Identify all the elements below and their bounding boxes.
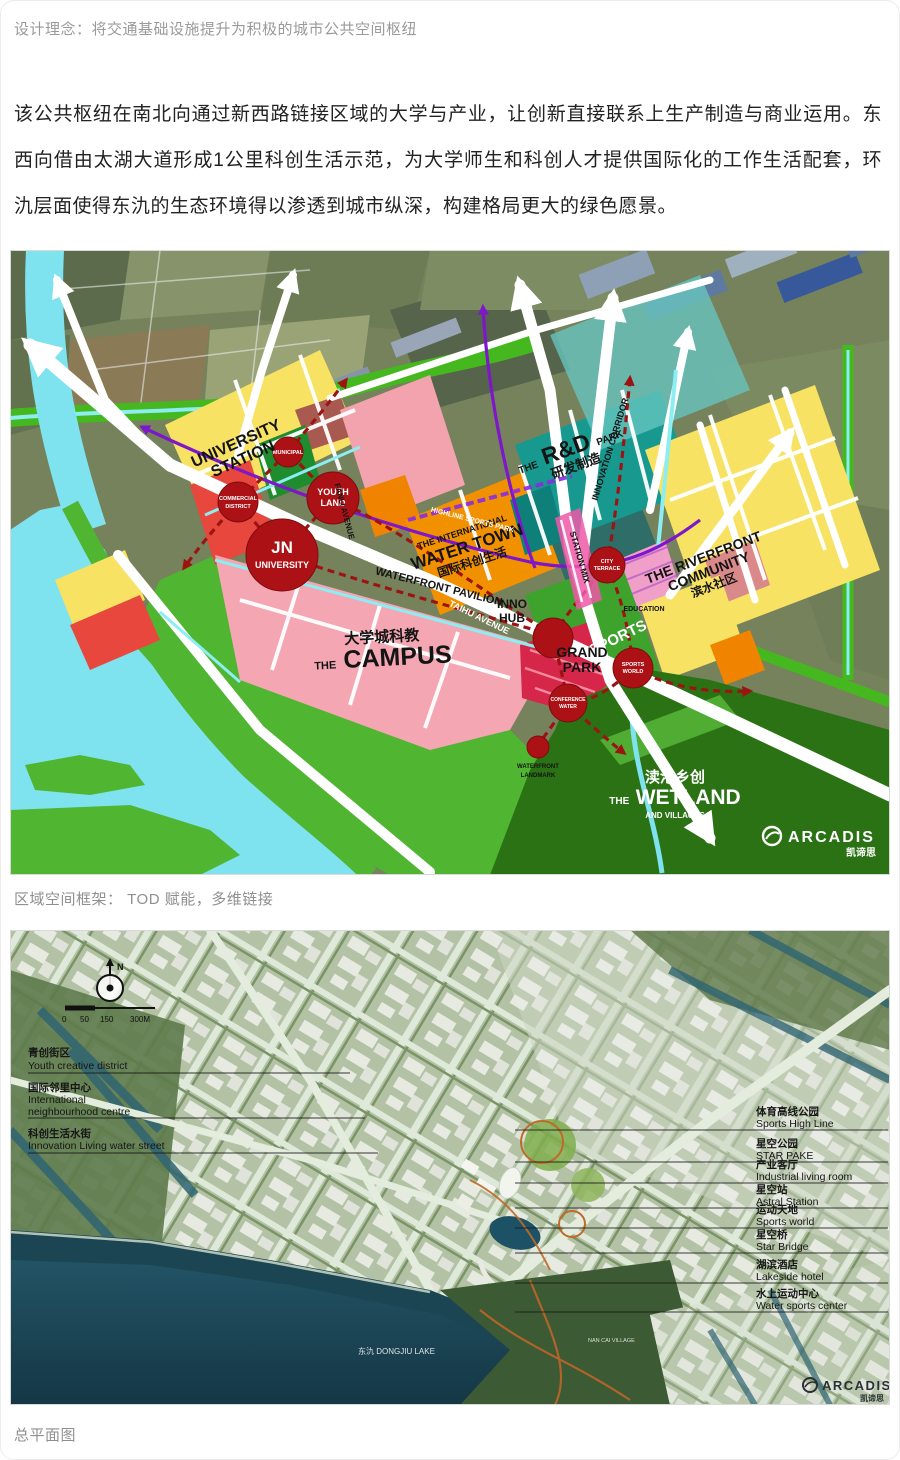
svg-text:AND VILLAGES: AND VILLAGES bbox=[645, 811, 705, 820]
design-concept-subtitle: 设计理念：将交通基础设施提升为积极的城市公共空间枢纽 bbox=[14, 18, 874, 39]
callout-starbridge-cn: 星空桥 bbox=[756, 1228, 788, 1241]
callout-youth-district-cn: 青创街区 bbox=[28, 1046, 70, 1059]
callout-hotel-cn: 湖滨酒店 bbox=[756, 1258, 798, 1271]
arcadis-wordmark: ARCADIS bbox=[788, 829, 875, 846]
node-commercial-line1: COMMERCIAL bbox=[219, 496, 258, 502]
callout-watersports-en: Water sports center bbox=[756, 1300, 848, 1312]
callout-star-park-cn: 星空公园 bbox=[756, 1137, 798, 1150]
callout-industrial-en: Industrial living room bbox=[756, 1171, 853, 1183]
node-conference-water bbox=[549, 684, 587, 722]
node-municipal-label: MUNICIPAL bbox=[273, 450, 304, 456]
callout-astral-cn: 星空站 bbox=[756, 1183, 788, 1196]
label-grand-park: GRAND PARK bbox=[556, 644, 607, 675]
svg-text:PARK: PARK bbox=[563, 659, 602, 675]
framework-map-figure: MUNICIPAL COMMERCIAL DISTRICT YOUTH LAND… bbox=[10, 250, 890, 875]
node-jn-line1: JN bbox=[271, 538, 293, 557]
landmark-label-line2: LANDMARK bbox=[521, 773, 556, 779]
label-education: EDUCATION bbox=[623, 606, 664, 613]
callout-sports-high-line-en: Sports High Line bbox=[756, 1118, 834, 1130]
callout-sports-high-line-cn: 体育高线公园 bbox=[756, 1105, 819, 1118]
callout-industrial-cn: 产业客厅 bbox=[756, 1158, 798, 1171]
callout-neighbourhood-cn: 国际邻里中心 bbox=[28, 1081, 91, 1094]
callout-hotel-en: Lakeside hotel bbox=[756, 1271, 824, 1283]
arcadis-cn: 凯谛思 bbox=[846, 846, 876, 859]
node-terrace-line1: CITY bbox=[601, 559, 614, 565]
callout-waterstreet-cn: 科创生活水街 bbox=[28, 1127, 91, 1140]
node-waterfront-landmark bbox=[527, 736, 549, 758]
label-inno-hub: INNO HUB bbox=[497, 597, 527, 625]
framework-caption: 区域空间框架： TOD 赋能，多维链接 bbox=[14, 888, 273, 909]
callout-starbridge-en: Star Bridge bbox=[756, 1241, 809, 1253]
scale-tick-150: 150 bbox=[100, 1015, 114, 1024]
masterplan-figure: 体育高线公园 Sports High Line 星空公园 STAR PAKE 产… bbox=[10, 930, 890, 1405]
node-city-terrace bbox=[589, 547, 625, 583]
node-sports-world bbox=[613, 648, 653, 688]
node-sportsworld-line2: WORLD bbox=[623, 669, 644, 675]
masterplan-caption: 总平面图 bbox=[14, 1424, 76, 1445]
node-sportsworld-line1: SPORTS bbox=[622, 662, 645, 668]
callout-youth-district-en: Youth creative district bbox=[28, 1060, 127, 1072]
callout-waterstreet-en: Innovation Living water street bbox=[28, 1140, 165, 1152]
callout-neighbourhood-en2: neighbourhood centre bbox=[28, 1106, 130, 1118]
callout-watersports-cn: 水上运动中心 bbox=[755, 1287, 819, 1300]
callout-sportsworld-cn: 运动天地 bbox=[756, 1203, 798, 1216]
svg-text:HUB: HUB bbox=[499, 611, 525, 625]
arcadis-wordmark2: ARCADIS bbox=[822, 1378, 890, 1393]
node-terrace-line2: TERRACE bbox=[594, 566, 621, 572]
village-label: NAN CAI VILLAGE bbox=[588, 1338, 635, 1344]
north-label: N bbox=[117, 962, 124, 972]
arcadis-cn2: 凯谛思 bbox=[860, 1393, 884, 1403]
node-jn-line2: UNIVERSITY bbox=[255, 560, 309, 570]
intro-paragraph: 该公共枢纽在南北向通过新西路链接区域的大学与产业，让创新直接联系上生产制造与商业… bbox=[14, 92, 882, 230]
svg-text:GRAND: GRAND bbox=[556, 644, 607, 660]
landmark-label-line1: WATERFRONT bbox=[517, 764, 559, 770]
scale-tick-50: 50 bbox=[80, 1015, 89, 1024]
node-conference-line1: CONFERENCE bbox=[550, 697, 586, 703]
node-commercial-district bbox=[218, 482, 258, 522]
scale-tick-0: 0 bbox=[62, 1015, 67, 1024]
svg-text:渎港乡创: 渎港乡创 bbox=[645, 768, 705, 786]
callout-sportsworld-en: Sports world bbox=[756, 1216, 815, 1228]
node-commercial-line2: DISTRICT bbox=[225, 504, 251, 510]
scale-tick-300: 300M bbox=[130, 1015, 150, 1024]
callout-neighbourhood-en1: International bbox=[28, 1094, 86, 1106]
svg-text:INNO: INNO bbox=[497, 597, 527, 611]
dongjiu-lake-label: 东氿 DONGJIU LAKE bbox=[358, 1346, 435, 1356]
node-conference-line2: WATER bbox=[559, 704, 577, 710]
